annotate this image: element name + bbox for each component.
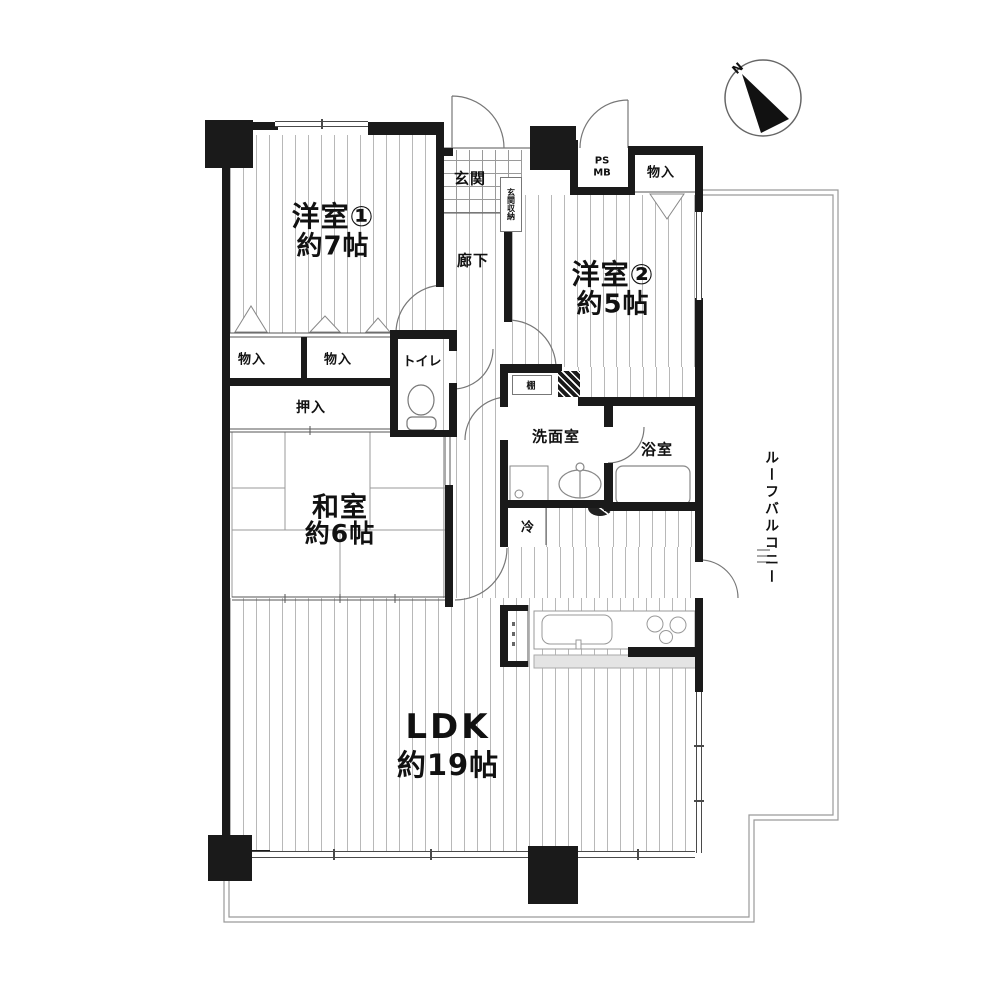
rei-label: 冷 xyxy=(521,517,535,536)
wall xyxy=(500,661,528,667)
bath-door-arc xyxy=(608,427,644,463)
washbasin-fixture xyxy=(559,463,601,498)
window xyxy=(696,692,702,853)
wall xyxy=(500,500,608,508)
wall xyxy=(628,146,703,155)
wall xyxy=(695,298,703,562)
genkan-shunou-label: 玄関収納 xyxy=(506,188,517,220)
balcony-door-arc xyxy=(700,560,738,598)
washitsu-size: 約6帖 xyxy=(305,514,375,550)
toilet-fixture xyxy=(407,385,436,430)
ldk-name: LDK xyxy=(405,707,490,747)
bathtub-fixture xyxy=(616,466,690,505)
rouka-label: 廊下 xyxy=(457,250,489,271)
wall xyxy=(695,146,703,212)
wall xyxy=(445,485,453,607)
wall xyxy=(500,364,508,407)
wall xyxy=(368,122,444,135)
wall xyxy=(500,605,528,611)
roof-balcony-outline xyxy=(224,190,838,922)
window-mullion xyxy=(430,849,432,860)
wall xyxy=(500,440,508,505)
window-mullion xyxy=(333,849,335,860)
mb-door-arc xyxy=(580,100,628,148)
yokushitsu-label: 浴室 xyxy=(641,439,673,460)
wall xyxy=(443,148,453,156)
kitchen-counter xyxy=(534,611,695,649)
wall xyxy=(604,502,703,511)
pillar-bottom-middle xyxy=(528,846,578,904)
window-mullion xyxy=(637,849,639,860)
ldk-size: 約19帖 xyxy=(397,742,499,784)
window-mullion xyxy=(694,745,704,747)
wall xyxy=(436,122,444,287)
wall xyxy=(504,230,512,322)
cabinet-marks xyxy=(512,622,515,646)
wall xyxy=(301,337,307,382)
yoshitsu2-size: 約5帖 xyxy=(576,284,649,321)
toilet-label: トイレ xyxy=(402,351,441,370)
yoshitsu1-size: 約7帖 xyxy=(296,226,369,263)
window xyxy=(252,851,528,858)
ps-shaft-box xyxy=(558,371,580,397)
toilet-door-arc xyxy=(453,349,493,389)
wall xyxy=(250,122,278,130)
stove-burner xyxy=(660,631,673,644)
senmenshitsu-label: 洗面室 xyxy=(532,426,580,447)
wall xyxy=(449,330,457,351)
wall xyxy=(628,647,698,657)
pillar-top-left xyxy=(205,120,253,168)
pillar-bottom-left xyxy=(208,835,252,881)
ps-label: PS xyxy=(595,156,610,167)
floor-plan: 洋室① 約7帖 洋室② 約5帖 和室 約6帖 LDK 約19帖 玄関 廊下 トイ… xyxy=(0,0,1000,1000)
roof-balcony-label: ルーフバルコニー xyxy=(761,450,781,586)
wall xyxy=(578,397,703,406)
wall xyxy=(222,122,230,862)
monoire-a-label: 物入 xyxy=(238,349,266,368)
window-mullion xyxy=(694,800,704,802)
oshiire-label: 押入 xyxy=(296,397,326,417)
washer-fixture xyxy=(510,466,548,502)
yoshitsu2-door-arc xyxy=(508,320,556,368)
wall xyxy=(500,605,508,667)
stove-burner xyxy=(647,616,663,632)
wall xyxy=(695,598,703,692)
wall xyxy=(604,397,613,427)
monoire-b-label: 物入 xyxy=(324,349,352,368)
ldk-door-arc xyxy=(455,548,507,600)
mb-label: MB xyxy=(593,168,611,179)
wall xyxy=(628,146,635,195)
wall xyxy=(226,378,394,386)
wall xyxy=(449,383,457,437)
wall xyxy=(570,187,635,195)
yoshitsu1-door-arc xyxy=(396,285,444,333)
tana-label: 棚 xyxy=(526,379,535,392)
wall xyxy=(390,330,457,339)
wall xyxy=(500,505,508,547)
monoire-c-label: 物入 xyxy=(647,162,675,181)
wall xyxy=(390,430,457,437)
entrance-door-arc xyxy=(452,96,504,148)
wall xyxy=(504,364,562,373)
genkan-label: 玄関 xyxy=(454,168,486,189)
stove-burner xyxy=(670,617,686,633)
window-mullion xyxy=(321,119,323,129)
window xyxy=(696,212,702,300)
